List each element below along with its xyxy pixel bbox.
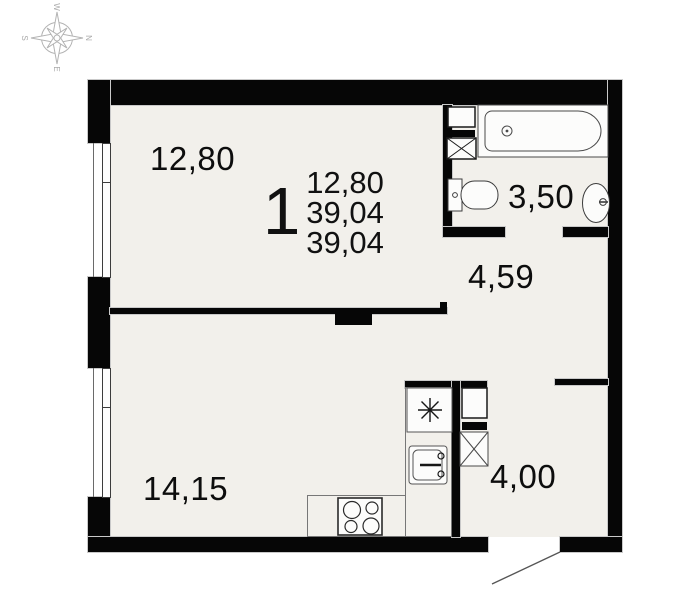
unit-areas: 12,80 39,04 39,04 bbox=[306, 168, 384, 258]
unit-summary: 1 12,80 39,04 39,04 bbox=[263, 168, 384, 258]
bathroom-sink-icon bbox=[583, 184, 610, 223]
entry-area-label: 4,00 bbox=[490, 458, 556, 496]
kitchen-room-area-label: 14,15 bbox=[143, 470, 228, 508]
unit-living-area: 12,80 bbox=[306, 168, 384, 198]
vent-shaft-kitchen-icon bbox=[460, 388, 488, 466]
unit-declared-area: 39,04 bbox=[306, 228, 384, 258]
entry-door-swing bbox=[492, 552, 560, 584]
washer-shaft-bathroom-icon bbox=[447, 107, 476, 159]
stove-icon bbox=[338, 498, 382, 535]
compass-west-label: W bbox=[52, 3, 61, 11]
living-room-area-label: 12,80 bbox=[150, 140, 235, 178]
toilet-icon bbox=[448, 179, 498, 211]
compass-icon: N E S W bbox=[20, 3, 93, 71]
compass-east-label: E bbox=[52, 66, 61, 71]
compass-north-label: N bbox=[84, 35, 93, 41]
compass-south-label: S bbox=[20, 35, 29, 40]
kitchen-sink-icon bbox=[409, 446, 447, 484]
unit-rooms-count: 1 bbox=[263, 182, 300, 242]
bathtub-icon bbox=[478, 105, 608, 157]
hallway-area-label: 4,59 bbox=[468, 258, 534, 296]
floor-plan: N E S W bbox=[0, 0, 684, 604]
bathroom-area-label: 3,50 bbox=[508, 178, 574, 216]
fixtures-layer: N E S W bbox=[0, 0, 684, 604]
unit-total-area: 39,04 bbox=[306, 198, 384, 228]
fridge-icon bbox=[407, 388, 452, 432]
